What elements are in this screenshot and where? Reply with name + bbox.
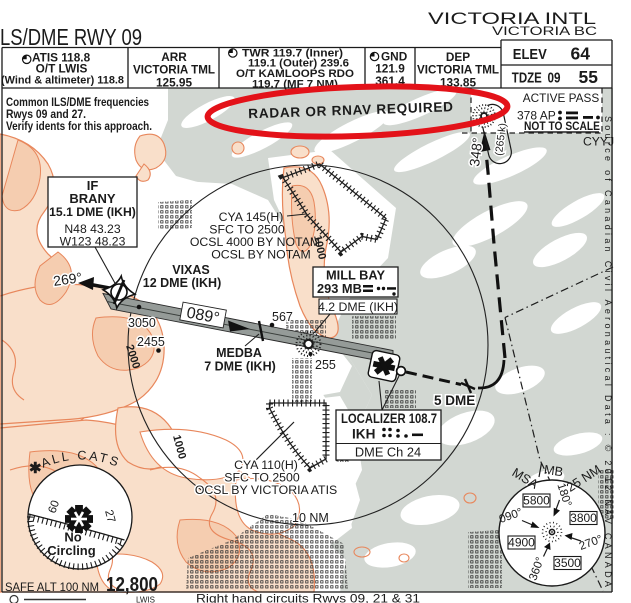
svg-text:293 MB: 293 MB [317,281,362,296]
svg-text:Circling: Circling [47,543,95,558]
svg-text:55: 55 [579,67,599,87]
svg-text:DME Ch 24: DME Ch 24 [355,445,421,460]
svg-text:12 DME (IKH): 12 DME (IKH) [143,276,221,290]
svg-text:3800: 3800 [570,511,597,525]
svg-text:255: 255 [315,358,336,372]
svg-text:3500: 3500 [554,556,581,570]
svg-text:09: 09 [548,71,561,87]
svg-text:12,800: 12,800 [106,574,158,596]
svg-text:Right hand circuits Rwys 09, 2: Right hand circuits Rwys 09, 21 & 31 [196,592,420,603]
svg-text:VICTORIA TML: VICTORIA TML [417,63,499,77]
svg-text:125.95: 125.95 [156,76,193,90]
svg-text:NOT TO SCALE: NOT TO SCALE [524,119,600,133]
svg-text:IKH: IKH [352,427,375,442]
svg-text:VICTORIA TML: VICTORIA TML [133,63,215,77]
svg-text:VIXAS: VIXAS [172,263,210,277]
svg-text:OCSL BY VICTORIA ATIS: OCSL BY VICTORIA ATIS [195,483,337,497]
svg-text:Source of Canadian Civil Aeron: Source of Canadian Civil Aeronautical Da… [603,116,613,590]
svg-text:(Wind & altimeter) 118.8: (Wind & altimeter) 118.8 [1,75,124,87]
svg-text:LWIS: LWIS [136,596,155,603]
svg-text:ACTIVE PASS: ACTIVE PASS [523,91,600,105]
svg-text:3050: 3050 [128,316,156,330]
svg-text:5800: 5800 [523,494,550,508]
svg-text:15.1 DME (IKH): 15.1 DME (IKH) [49,205,136,219]
svg-text:7 DME (IKH): 7 DME (IKH) [204,360,276,374]
svg-text:✱: ✱ [29,460,42,477]
svg-text:O/T LWIS: O/T LWIS [36,61,88,75]
svg-text:567: 567 [272,310,293,324]
svg-text:Verify idents for this approac: Verify idents for this approach. [6,121,152,133]
svg-text:OCSL BY NOTAM: OCSL BY NOTAM [211,248,311,262]
svg-text:4900: 4900 [508,536,535,550]
svg-text:5 DME: 5 DME [434,393,475,408]
svg-text:TDZE: TDZE [512,71,542,87]
svg-text:BRANY: BRANY [69,191,116,206]
svg-text:Common ILS/DME frequencies: Common ILS/DME frequencies [6,97,149,109]
svg-text:ELEV: ELEV [513,47,547,63]
svg-text:4.2 DME (IKH): 4.2 DME (IKH) [318,300,398,314]
svg-text:Rwys 09 and 27.: Rwys 09 and 27. [6,109,86,121]
svg-text:LOCALIZER 108.7: LOCALIZER 108.7 [341,411,437,426]
svg-text:MEDBA: MEDBA [216,346,262,360]
svg-text:LS/DME RWY 09: LS/DME RWY 09 [0,24,142,50]
svg-text:W123 48.23: W123 48.23 [60,235,126,249]
svg-text:2455: 2455 [137,335,165,349]
svg-text:MB: MB [543,462,564,480]
svg-text:64: 64 [571,44,591,64]
svg-text:VICTORIA BC: VICTORIA BC [492,25,597,38]
svg-text:10 NM: 10 NM [292,511,329,525]
